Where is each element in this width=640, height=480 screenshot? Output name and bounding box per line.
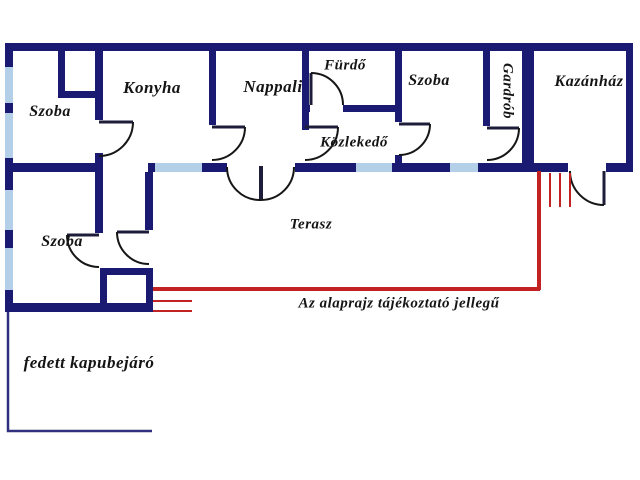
room-label-szoba-middle: Szoba [408,72,450,90]
room-label-szoba-lower-left: Szoba [41,233,83,251]
floor-plan-drawing [0,0,640,480]
room-label-gardrob: Gardrób [499,63,516,119]
room-label-nappali: Nappali [243,77,302,97]
room-label-kazanhaz: Kazánház [555,73,624,91]
room-label-kozlekedo: Közlekedő [320,135,388,152]
room-label-szoba-upper-left: Szoba [29,103,71,121]
room-label-terasz: Terasz [290,217,332,234]
terrace-outline [153,171,570,311]
floor-plan-canvas: Szoba Konyha Nappali Fürdő Szoba Gardrób… [0,0,640,480]
disclaimer-text: Az alaprajz tájékoztató jellegű [299,296,500,313]
room-label-furdo: Fürdő [324,58,366,75]
room-label-fedett-kapubejaro: fedett kapubejáró [24,353,155,373]
room-label-konyha: Konyha [123,78,181,98]
